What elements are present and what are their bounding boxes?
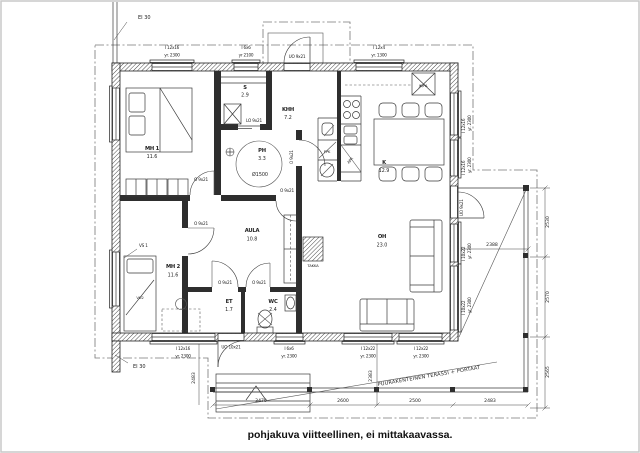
dim-3470: 3470: [255, 398, 267, 404]
fridge-label: JK/PA: [418, 83, 428, 88]
room-label-s: S: [243, 85, 247, 91]
firewall-bottom-wall: [112, 341, 120, 372]
door-label-wc: O 9x21: [252, 280, 266, 285]
svg-text:11.6: 11.6: [147, 154, 158, 160]
fireplace-label: TAKKA: [306, 263, 319, 268]
svg-text:I 6x6: I 6x6: [284, 346, 294, 351]
svg-text:UO 9x21: UO 9x21: [289, 54, 306, 59]
room-label-et: ET: [226, 299, 233, 305]
svg-text:UO 10x21: UO 10x21: [221, 345, 241, 350]
svg-text:I 12x4: I 12x4: [373, 45, 385, 50]
svg-text:10.8: 10.8: [247, 237, 258, 243]
svg-text:I 12x22: I 12x22: [414, 346, 429, 351]
room-label-wc: WC: [268, 299, 278, 305]
svg-text:yr. 2300: yr. 2300: [467, 243, 472, 259]
floorplan-page: EI 30 PUURAKENTEINEN TERASSI + PORTAAT: [0, 0, 640, 453]
svg-text:11.6: 11.6: [168, 273, 179, 279]
svg-text:7.2: 7.2: [284, 115, 292, 121]
dim-2565: 2565: [545, 366, 551, 378]
svg-text:I 12x22: I 12x22: [361, 346, 376, 351]
svg-text:yr. 1300: yr. 1300: [371, 53, 387, 58]
window-left-2: [110, 250, 120, 308]
svg-text:2.9: 2.9: [241, 93, 249, 99]
ei30-top-label: EI 30: [138, 15, 151, 21]
caption: pohjakuva viitteellinen, ei mittakaavass…: [248, 429, 453, 441]
svg-text:yr. 2300: yr. 2300: [467, 115, 472, 131]
room-label-khh: KHH: [282, 107, 294, 113]
partition-label-vs1: VS 1: [139, 243, 148, 248]
svg-text:yr. 2300: yr. 2300: [281, 354, 297, 359]
dim-2383: 2383: [368, 370, 374, 382]
svg-text:23.0: 23.0: [377, 243, 388, 249]
svg-text:I 12x16: I 12x16: [461, 160, 466, 175]
room-label-oh: OH: [378, 234, 386, 240]
dim-2388: 2388: [486, 242, 498, 248]
svg-text:I 12x16: I 12x16: [461, 118, 466, 133]
svg-text:2.4: 2.4: [269, 307, 277, 313]
svg-text:I 10x22: I 10x22: [461, 246, 466, 261]
svg-text:UO 9x21: UO 9x21: [459, 199, 464, 216]
door-label-sauna: LO 9x21: [246, 118, 262, 123]
dim-2570: 2570: [545, 291, 551, 303]
window-left-1: [110, 86, 120, 142]
svg-text:yr. 2300: yr. 2300: [164, 53, 180, 58]
door-label-mh1: O 9x21: [194, 177, 208, 182]
dim-2483: 2483: [191, 372, 197, 384]
svg-text:I 6x6: I 6x6: [241, 45, 251, 50]
svg-text:yr. 2300: yr. 2300: [467, 297, 472, 313]
dim-2600: 2600: [337, 398, 349, 404]
door-label-khh: O 9x21: [280, 188, 294, 193]
door-label-mh2: O 9x21: [194, 221, 208, 226]
svg-text:I 10x22: I 10x22: [461, 300, 466, 315]
bed2-label: VU2: [136, 295, 144, 300]
room-label-ph: PH: [258, 148, 266, 154]
room-label-mh1: MH 1: [145, 146, 160, 152]
svg-text:yr. 2300: yr. 2300: [413, 354, 429, 359]
svg-text:1.7: 1.7: [225, 307, 233, 313]
svg-text:yr. 2300: yr. 2300: [175, 354, 191, 359]
floorplan-svg: EI 30 PUURAKENTEINEN TERASSI + PORTAAT: [0, 0, 640, 453]
svg-text:I 12x16: I 12x16: [176, 346, 191, 351]
svg-text:I 12x16: I 12x16: [165, 45, 180, 50]
svg-text:yr. 2300: yr. 2300: [467, 157, 472, 173]
turning-circle-label: Ø1500: [252, 171, 268, 178]
door-label-ph: O 9x21: [289, 150, 294, 164]
svg-text:3.3: 3.3: [258, 156, 266, 162]
room-label-aula: AULA: [245, 228, 260, 234]
dim-2500: 2500: [409, 398, 421, 404]
door-label-et: O 9x21: [218, 280, 232, 285]
dim-2483b: 2483: [484, 398, 496, 404]
shower-icon: [226, 148, 234, 156]
ei30-bottom-label: EI 30: [133, 364, 146, 370]
svg-text:yr 2100: yr 2100: [239, 53, 254, 58]
room-label-mh2: MH 2: [166, 264, 181, 270]
svg-text:yr. 2300: yr. 2300: [360, 354, 376, 359]
dim-2530: 2530: [545, 216, 551, 228]
svg-text:12.9: 12.9: [379, 168, 390, 174]
